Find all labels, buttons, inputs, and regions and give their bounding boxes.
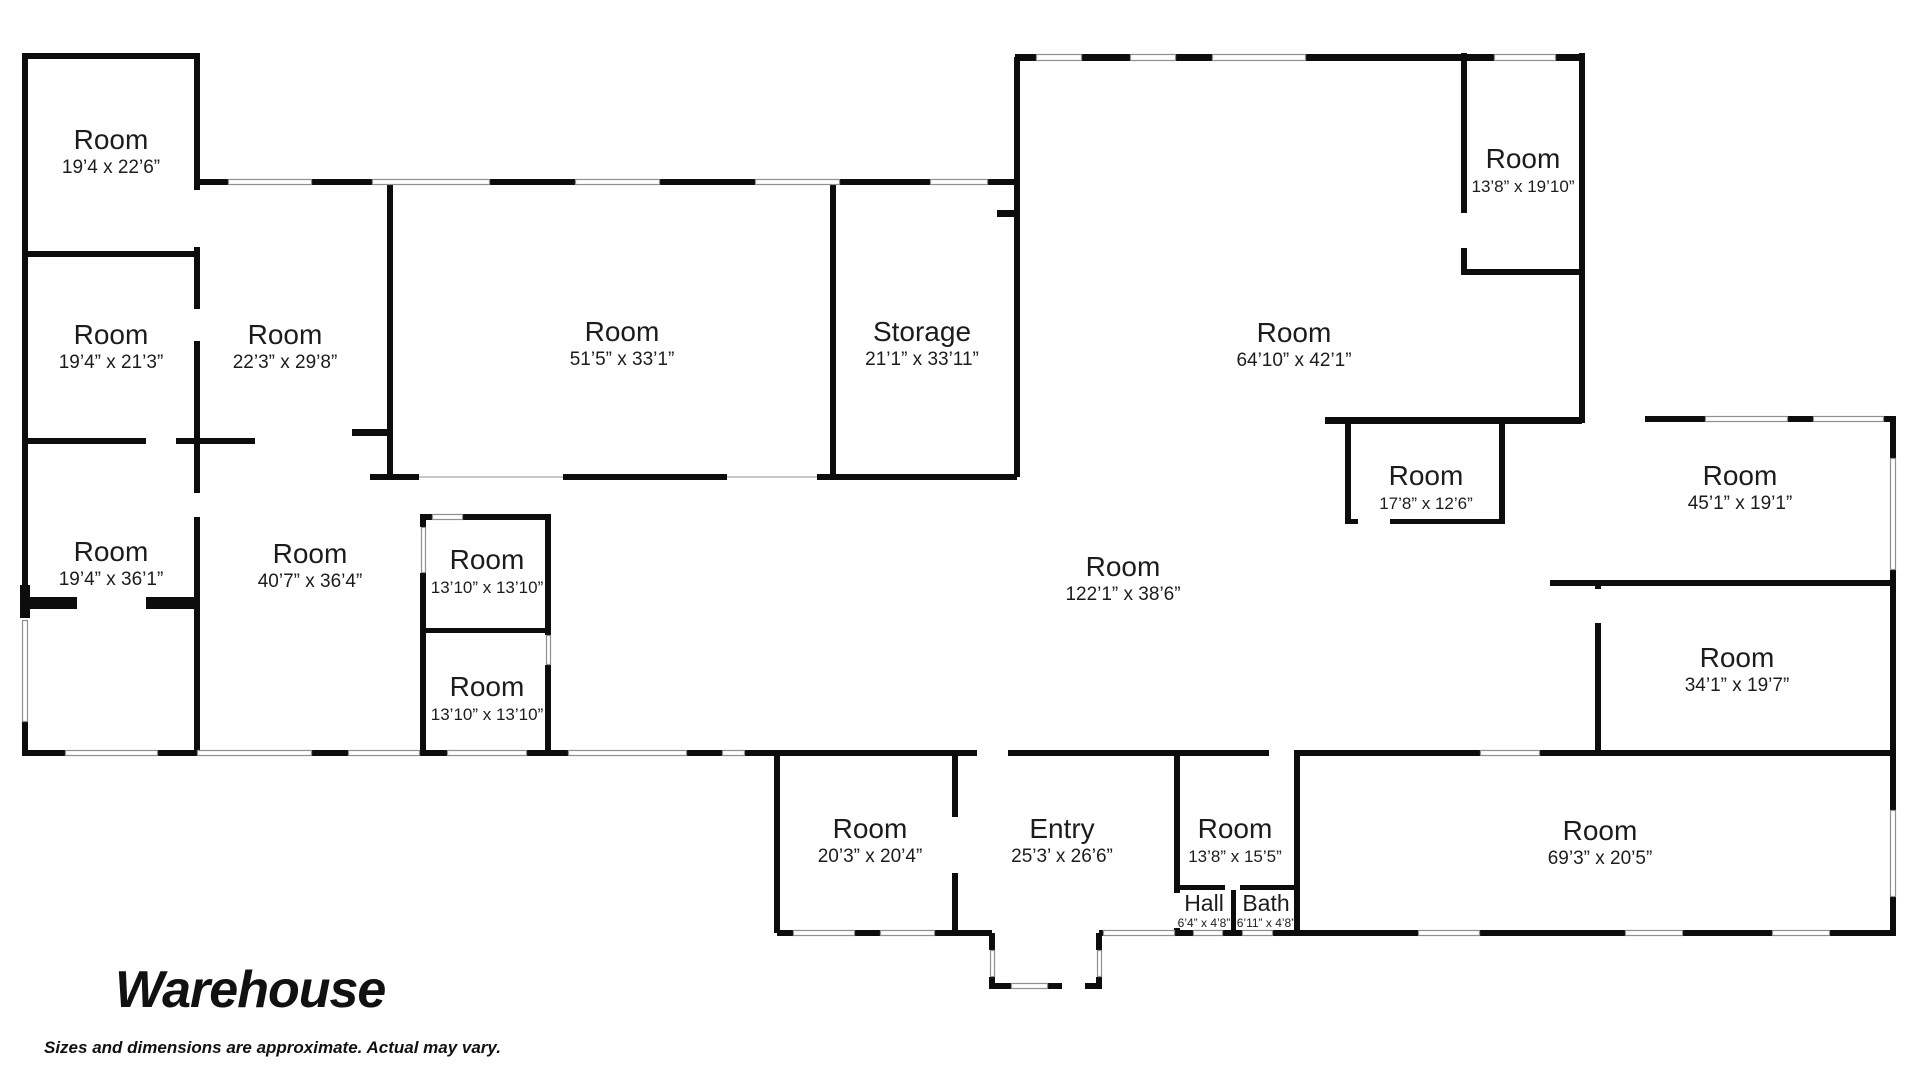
wall (1390, 519, 1505, 524)
window-marker (794, 931, 855, 936)
wall (370, 474, 419, 480)
wall (989, 983, 1011, 989)
wall (1231, 890, 1236, 933)
room-label-name: Room (273, 538, 348, 569)
wall (1461, 269, 1585, 275)
wall (840, 179, 930, 185)
room-label-name: Room (833, 813, 908, 844)
wall (22, 251, 200, 257)
window-marker (349, 751, 420, 756)
wall (1294, 753, 1300, 933)
window-marker (756, 180, 840, 185)
room-label-dims: 22’3” x 29’8” (233, 352, 338, 373)
window-marker (1194, 931, 1223, 936)
room-label-dims: 19’4” x 36’1” (59, 569, 164, 590)
wall (1595, 583, 1601, 589)
room-label-dims: 51’5” x 33’1” (570, 349, 675, 370)
window-marker (1814, 417, 1884, 422)
room-label-dims: 122’1” x 38’6” (1065, 584, 1180, 605)
wall (176, 438, 200, 444)
wall (687, 750, 722, 756)
wall (1464, 54, 1494, 61)
room-label-dims: 20’3” x 20’4” (818, 846, 923, 867)
wall (1890, 897, 1896, 936)
plan-disclaimer: Sizes and dimensions are approximate. Ac… (44, 1038, 501, 1058)
floorplan-canvas: Room19’4 x 22’6”Room19’4” x 21’3”Room22’… (0, 0, 1920, 1074)
window-marker (1037, 55, 1082, 61)
wall (817, 474, 1017, 480)
wall (146, 597, 196, 609)
wall (312, 179, 372, 185)
room-label-dims: 19’4 x 22’6” (62, 157, 160, 178)
room-label-dims: 13’10” x 13’10” (431, 578, 544, 597)
room-label-name: Entry (1029, 813, 1094, 844)
window-marker (66, 751, 158, 756)
room-label-dims: 25’3’ x 26’6” (1011, 846, 1113, 867)
wall (420, 633, 426, 756)
window-marker (1419, 931, 1480, 936)
wall (22, 438, 146, 444)
wall (1830, 930, 1896, 936)
wall (1325, 417, 1582, 424)
window-marker (1243, 931, 1273, 936)
wall (1890, 570, 1896, 810)
window-marker (1213, 55, 1306, 61)
wall (22, 53, 200, 59)
wall (1345, 424, 1351, 524)
wall (660, 179, 755, 185)
wall (997, 210, 1014, 217)
window-marker (198, 751, 312, 756)
room-label-name: Room (74, 536, 149, 567)
wall (1461, 248, 1467, 269)
window-marker (1495, 55, 1556, 61)
wall (774, 753, 780, 933)
room-label-dims: 34’1” x 19’7” (1685, 675, 1790, 696)
wall (200, 438, 255, 444)
wall (26, 597, 77, 609)
wall (545, 665, 551, 756)
wall (1461, 53, 1467, 213)
window-marker (229, 180, 312, 185)
room-label-dims: 13’8” x 19’10” (1471, 177, 1574, 196)
window-marker (881, 931, 935, 936)
room-label-name: Room (74, 124, 149, 155)
window-marker (1626, 931, 1683, 936)
wall (1550, 580, 1895, 586)
wall (1645, 416, 1705, 422)
wall (952, 873, 958, 933)
wall (1096, 977, 1102, 986)
window-marker (569, 751, 687, 756)
wall (22, 750, 65, 756)
window-marker (991, 951, 995, 977)
window-marker (1104, 931, 1175, 936)
window-marker (1706, 417, 1788, 422)
window-marker (1481, 751, 1540, 756)
wall (1345, 519, 1358, 524)
window-marker (1891, 811, 1896, 897)
room-label-dims: 19’4” x 21’3” (59, 352, 164, 373)
room-label-name: Room (1198, 813, 1273, 844)
room-label-name: Room (1703, 460, 1778, 491)
room-label-dims: 64’10” x 42’1” (1236, 350, 1351, 371)
window-marker (1098, 951, 1102, 977)
room-label-name: Room (1086, 551, 1161, 582)
room-label-name: Room (1700, 642, 1775, 673)
plan-title: Warehouse (115, 960, 385, 1020)
room-label-dims: 17’8” x 12’6” (1379, 494, 1473, 513)
wall (1884, 416, 1893, 422)
wall (1082, 54, 1130, 61)
wall (1579, 53, 1585, 423)
wall (1306, 54, 1464, 61)
room-label-name: Room (248, 319, 323, 350)
wall (1480, 930, 1625, 936)
room-label-dims: 69’3” x 20’5” (1548, 848, 1653, 869)
room-label-name: Room (1389, 460, 1464, 491)
wall (952, 753, 958, 817)
window-marker (422, 528, 426, 573)
wall (1223, 930, 1242, 936)
wall (158, 750, 197, 756)
wall (830, 182, 836, 477)
room-label-name: Bath (1242, 890, 1289, 916)
wall (1890, 416, 1896, 458)
wall (1595, 623, 1601, 756)
room-label-dims: 6’11” x 4’8” (1237, 916, 1295, 930)
window-marker (373, 180, 490, 185)
room-label-name: Storage (873, 316, 971, 347)
wall (420, 628, 551, 633)
room-label-name: Room (585, 316, 660, 347)
window-marker (723, 751, 745, 756)
wall (22, 53, 28, 585)
room-label-dims: 40’7” x 36’4” (258, 571, 363, 592)
room-label-name: Hall (1184, 890, 1224, 916)
wall (1008, 750, 1269, 756)
wall (777, 930, 793, 936)
wall (194, 341, 200, 493)
wall (1499, 424, 1505, 524)
wall (1174, 753, 1180, 893)
wall (545, 514, 551, 635)
room-label-name: Room (1563, 815, 1638, 846)
wall (312, 750, 348, 756)
wall (420, 573, 426, 633)
wall (194, 517, 200, 756)
window-marker (23, 621, 28, 722)
room-label-dims: 21’1” x 33’11” (865, 349, 979, 370)
window-marker (448, 751, 527, 756)
wall (1014, 57, 1020, 477)
wall (855, 930, 880, 936)
wall (1683, 930, 1772, 936)
room-label-name: Room (74, 319, 149, 350)
window-marker (433, 515, 463, 520)
wall (777, 750, 977, 756)
wall (352, 429, 390, 436)
wall (989, 933, 995, 950)
room-label-name: Room (450, 544, 525, 575)
window-marker (931, 180, 988, 185)
room-label-dims: 13’10” x 13’10” (431, 705, 544, 724)
room-label-dims: 13’8” x 15’5” (1188, 847, 1282, 866)
window-marker (1012, 984, 1048, 989)
floorplan-svg: Room19’4 x 22’6”Room19’4” x 21’3”Room22’… (0, 0, 1920, 1074)
room-label-dims: 45’1” x 19’1” (1688, 493, 1793, 514)
room-label-name: Room (1257, 317, 1332, 348)
room-label-dims: 6’4” x 4’8” (1178, 916, 1231, 930)
wall (420, 514, 426, 527)
wall (935, 930, 992, 936)
wall (194, 53, 200, 190)
wall (1294, 750, 1480, 756)
wall (1175, 930, 1193, 936)
wall (1788, 416, 1813, 422)
window-marker (576, 180, 660, 185)
wall (1540, 750, 1893, 756)
window-marker (1891, 459, 1896, 570)
room-label-name: Room (450, 671, 525, 702)
wall (1273, 930, 1297, 936)
wall (420, 750, 447, 756)
wall (1297, 930, 1418, 936)
wall (1048, 983, 1062, 989)
room-label-name: Room (1486, 143, 1561, 174)
wall (563, 474, 727, 480)
wall (527, 750, 568, 756)
wall (200, 179, 228, 185)
wall (1176, 54, 1212, 61)
window-marker (547, 636, 551, 665)
window-marker (1773, 931, 1830, 936)
wall (490, 179, 575, 185)
window-marker (1131, 55, 1176, 61)
